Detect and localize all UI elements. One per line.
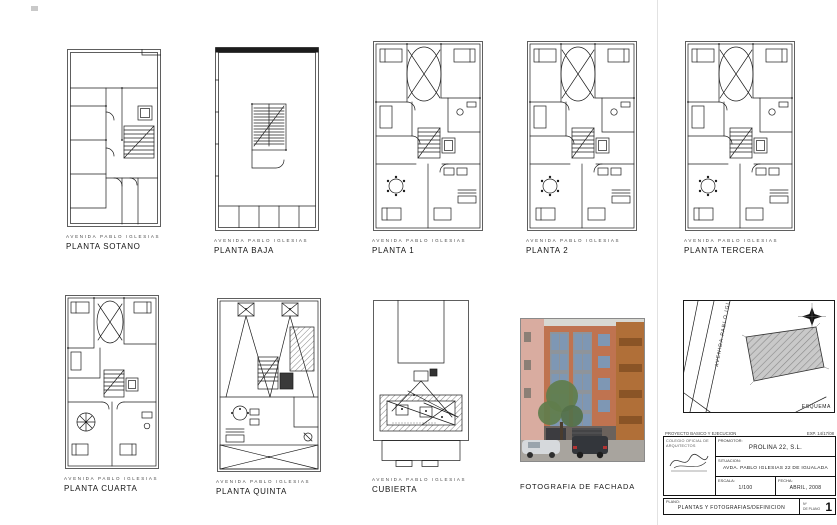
- location-label: SITUACION:: [718, 458, 741, 463]
- photo-caption: FOTOGRAFIA DE FACHADA: [520, 482, 645, 491]
- site-map-drawing: AVENIDA PABLO IGLESIAS: [684, 301, 834, 412]
- street-label: AVENIDA PABLO IGLESIAS: [372, 477, 470, 482]
- plan-title: PLANTA 1: [372, 246, 484, 255]
- sheet-number: 1: [825, 500, 832, 514]
- scale-field: ESCALA: 1/100: [716, 477, 775, 495]
- facade-photo-image: [520, 318, 645, 462]
- floor-plan-tercera: AVENIDA PABLO IGLESIAS PLANTA TERCERA: [684, 40, 796, 255]
- floor-plan-quinta: AVENIDA PABLO IGLESIAS PLANTA QUINTA: [216, 297, 322, 496]
- floor-plan-planta2: AVENIDA PABLO IGLESIAS PLANTA 2: [526, 40, 638, 255]
- site-map: AVENIDA PABLO IGLESIAS ESQUEMA: [683, 300, 835, 413]
- promoter-field: PROMOTOR: PROLINA 22, S.L.: [716, 437, 835, 457]
- drawing-title-bar: PLANO: PLANTAS Y FOTOGRAFIAS/DEFINICION …: [663, 498, 836, 515]
- scan-corner-mark: [31, 6, 38, 11]
- floor-plan-planta1: AVENIDA PABLO IGLESIAS PLANTA 1: [372, 40, 484, 255]
- signature-scribble-icon: [666, 448, 712, 474]
- floor-plan-drawing: [372, 40, 484, 232]
- location-field: SITUACION: AVDA. PABLO IGLESIAS 22 DE IG…: [716, 457, 835, 477]
- date-label: FECHA:: [778, 478, 793, 483]
- street-label: AVENIDA PABLO IGLESIAS: [526, 238, 638, 243]
- street-label: AVENIDA PABLO IGLESIAS: [64, 476, 160, 481]
- street-label: AVENIDA PABLO IGLESIAS: [684, 238, 796, 243]
- street-label: AVENIDA PABLO IGLESIAS: [66, 234, 162, 239]
- floor-plan-drawing: [216, 297, 322, 473]
- map-corner-label: ESQUEMA: [802, 404, 831, 410]
- drawing-sheet: AVENIDA PABLO IGLESIAS PLANTA SOTANO AVE…: [0, 0, 837, 525]
- floor-plan-drawing: [64, 294, 160, 470]
- plan-title: PLANTA SOTANO: [66, 242, 162, 251]
- floor-plan-drawing: [526, 40, 638, 232]
- date-field: FECHA: ABRIL, 2008: [775, 477, 835, 495]
- sheet-number-cell: Nº DE PLANO 1: [799, 499, 835, 514]
- floor-plan-drawing: [372, 299, 470, 471]
- facade-photo: FOTOGRAFIA DE FACHADA: [520, 318, 645, 491]
- drawing-label: PLANO:: [666, 500, 680, 504]
- floor-plan-sotano: AVENIDA PABLO IGLESIAS PLANTA SOTANO: [66, 48, 162, 251]
- drawing-title: PLANTAS Y FOTOGRAFIAS/DEFINICION: [664, 499, 799, 514]
- floor-plan-drawing: [684, 40, 796, 232]
- title-block-main: COLEGIO OFICIAL DE ARQUITECTOS PROMOTOR:…: [663, 436, 836, 496]
- title-block: PROYECTO BASICO Y EJECUCION EXP. 14/17/0…: [663, 427, 836, 515]
- floor-plan-drawing: [214, 46, 320, 232]
- promoter-label: PROMOTOR:: [718, 438, 743, 443]
- map-street-label: AVENIDA PABLO IGLESIAS: [714, 301, 735, 367]
- plan-title: PLANTA QUINTA: [216, 487, 322, 496]
- street-label: AVENIDA PABLO IGLESIAS: [216, 479, 322, 484]
- street-label: AVENIDA PABLO IGLESIAS: [372, 238, 484, 243]
- street-label: AVENIDA PABLO IGLESIAS: [214, 238, 320, 243]
- architect-stamp: COLEGIO OFICIAL DE ARQUITECTOS: [664, 437, 716, 495]
- scale-label: ESCALA:: [718, 478, 735, 483]
- plan-title: PLANTA TERCERA: [684, 246, 796, 255]
- sheet-no-label: DE PLANO: [803, 507, 820, 511]
- plan-title: PLANTA 2: [526, 246, 638, 255]
- title-block-header: PROYECTO BASICO Y EJECUCION EXP. 14/17/0…: [663, 427, 836, 436]
- sheet-fold-line: [657, 0, 658, 525]
- floor-plan-cubierta: AVENIDA PABLO IGLESIAS CUBIERTA: [372, 299, 470, 494]
- floor-plan-cuarta: AVENIDA PABLO IGLESIAS PLANTA CUARTA: [64, 294, 160, 493]
- floor-plan-baja: AVENIDA PABLO IGLESIAS PLANTA BAJA: [214, 46, 320, 255]
- floor-plan-drawing: [66, 48, 162, 228]
- plan-title: PLANTA BAJA: [214, 246, 320, 255]
- plan-title: PLANTA CUARTA: [64, 484, 160, 493]
- plan-title: CUBIERTA: [372, 485, 470, 494]
